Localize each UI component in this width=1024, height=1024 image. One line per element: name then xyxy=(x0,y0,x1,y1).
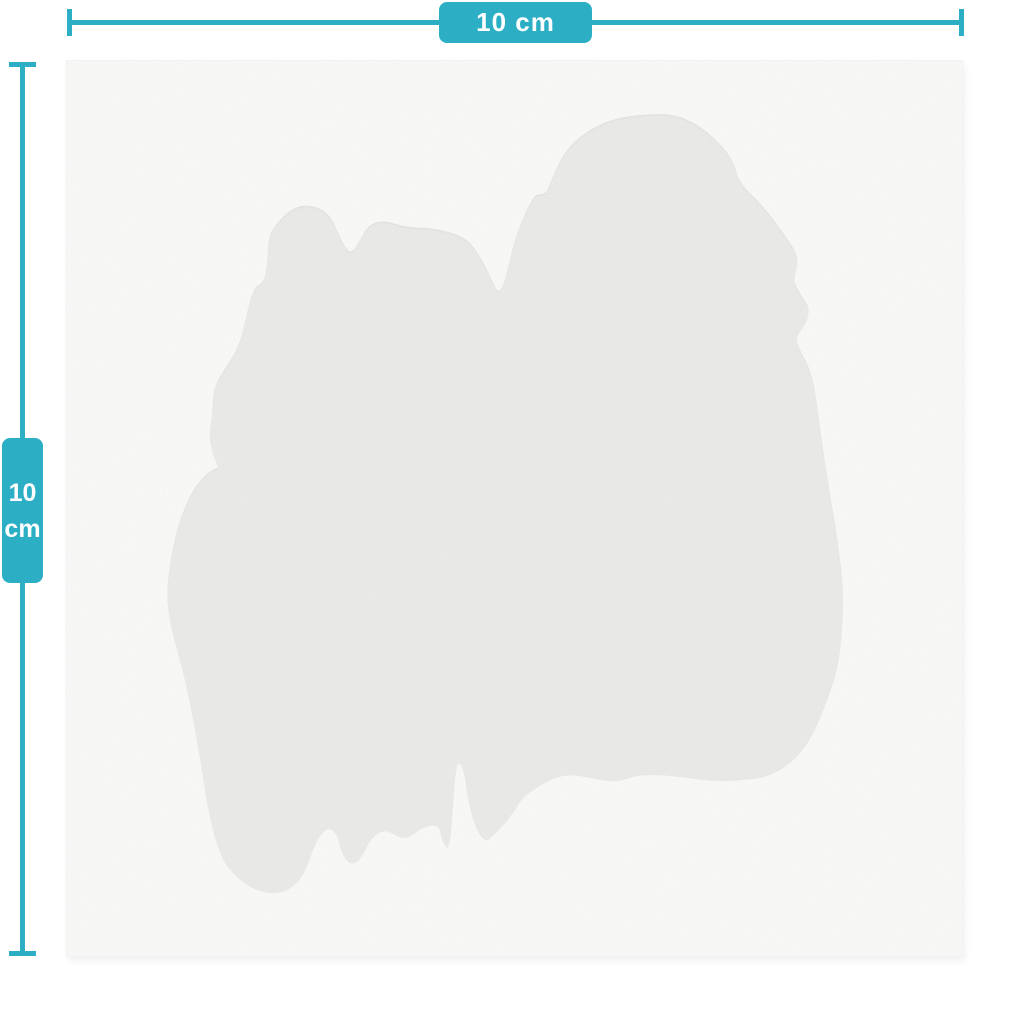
dimension-diagram: 10 cm 10 cm xyxy=(0,0,1024,1024)
product-canvas xyxy=(66,60,963,957)
width-dimension-cap-left xyxy=(67,9,72,36)
height-dimension-unit: cm xyxy=(4,511,40,547)
page-background: { "diagram": { "kind": "product-size-dia… xyxy=(0,0,1024,1024)
height-dimension-cap-top xyxy=(9,62,36,67)
width-dimension-label: 10 cm xyxy=(476,7,555,38)
paper-noise-texture xyxy=(67,61,962,956)
height-dimension-cap-bottom xyxy=(9,951,36,956)
width-dimension-badge: 10 cm xyxy=(439,2,592,43)
width-dimension-cap-right xyxy=(959,9,964,36)
height-dimension-badge: 10 cm xyxy=(2,438,43,583)
sticker-blob-graphic xyxy=(67,61,962,956)
height-dimension-value: 10 xyxy=(9,475,37,511)
